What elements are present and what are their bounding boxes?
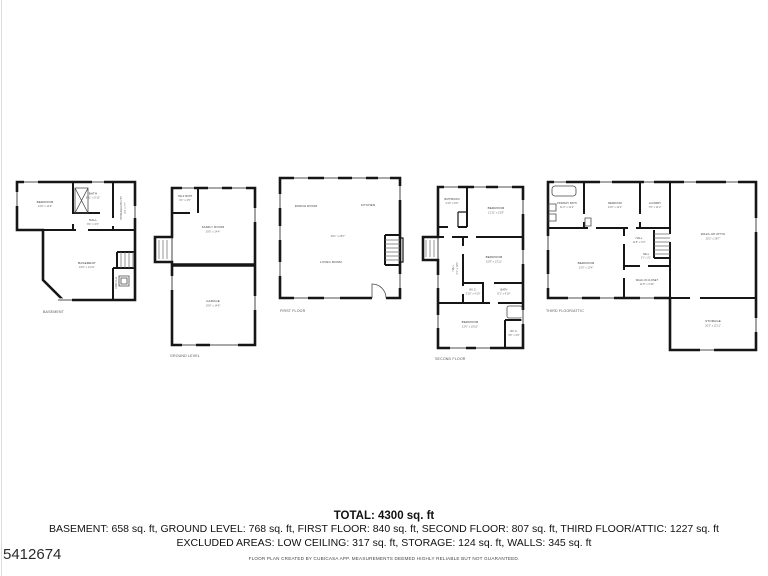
caption-third-floor-attic: THIRD FLOOR/ATTIC [546, 309, 584, 313]
room-dims-storage-utility: 3'3" x 7'7" [123, 202, 127, 214]
room-dims-basement: 19'0" x 14'11" [79, 265, 95, 269]
room-label-storage: STORAGE [705, 319, 721, 323]
plan-ground-level: HALF BATH 3'1" x 4'5" FAMILY ROOM 19'5" … [152, 176, 262, 362]
room-dims-garage: 19'6" x 14'8" [206, 304, 221, 308]
windows [438, 187, 523, 348]
toilet-icon [585, 218, 591, 226]
room-label-bedroom-2: BEDROOM [578, 261, 595, 265]
room-label-hall: HALL [452, 264, 455, 271]
room-dims-half-bath: 3'1" x 4'5" [179, 198, 191, 202]
room-label-walkin-closet: WALK-IN CLOSET [636, 279, 659, 282]
room-label-low-clg: LOW CLG [115, 277, 118, 289]
room-label-bedroom-3: BEDROOM [462, 320, 479, 324]
stairs-icon [426, 240, 434, 257]
stairs-icon [159, 240, 167, 259]
room-label-hall: HALL [89, 218, 97, 222]
room-dims-family-room: 19'5" x 14'4" [206, 230, 221, 234]
stairs-icon [385, 240, 400, 260]
closet-icon [507, 306, 522, 318]
floorplan-sheet: BEDROOM 14'6" x 11'9" BATH 8'11" x 5'10"… [0, 0, 768, 576]
room-label-primary-bath: PRIMARY BATH [557, 202, 577, 205]
room-dims-walkin-closet: 11'8" x 3'10" [640, 282, 655, 286]
room-dims-hall: 3'1" x 18'1" [455, 261, 459, 274]
walls [155, 188, 255, 345]
room-label-family-room: FAMILY ROOM [202, 225, 225, 229]
room-label-bath: BATH [501, 289, 508, 292]
plan-basement: BEDROOM 14'6" x 11'9" BATH 8'11" x 5'10"… [14, 176, 142, 326]
room-dims-bedroom-1: 12'11" x 13'9" [488, 211, 504, 215]
first-floor-dims: 29'1" x 28'7" [331, 234, 346, 238]
basement-floorplan-drawing: BEDROOM 14'6" x 11'9" BATH 8'11" x 5'10"… [14, 176, 142, 326]
room-label-kitchen: KITCHEN [361, 203, 375, 207]
room-dims-bathroom: 4'10" x 6'6" [445, 201, 458, 205]
room-label-bedroom-1: BEDROOM [488, 206, 505, 210]
room-dims-hall-1: 11'8" x 3'3" [632, 240, 645, 244]
caption-first-floor: FIRST FLOOR [280, 309, 306, 313]
room-label-bedroom: BEDROOM [37, 200, 54, 204]
room-label-bath: BATH [89, 192, 97, 196]
sink-icon [549, 204, 556, 221]
room-label-bathroom: BATHROOM [444, 198, 459, 201]
left-edge-line [1, 0, 2, 576]
plan-first-floor: DINING ROOM KITCHEN 29'1" x 28'7" LIVING… [276, 170, 408, 320]
room-dims-bedroom: 14'6" x 11'9" [38, 204, 53, 208]
room-label-wic-2: W.I.C. [510, 330, 518, 333]
room-label-hall-1: HALL [636, 237, 643, 240]
plan-third-floor-attic: PRIMARY BATH 11'3" x 11'2" BEDROOM 13'0"… [544, 178, 766, 360]
room-label-basement: BASEMENT [78, 261, 96, 265]
room-dims-bedroom-3: 13'6" x 10'10" [462, 325, 478, 329]
ground-level-floorplan-drawing: HALF BATH 3'1" x 4'5" FAMILY ROOM 19'5" … [152, 176, 262, 362]
excluded-areas-text: EXCLUDED AREAS: LOW CEILING: 317 sq. ft,… [0, 537, 768, 551]
room-dims-primary-bath: 11'3" x 11'2" [560, 205, 574, 209]
room-dims-wic-1: 3'10" x 4'10" [466, 292, 481, 296]
room-dims-wic-2: 4'5" x 4'6" [508, 333, 520, 337]
room-label-walkup-attic: WALK-UP ATTIC [701, 232, 726, 236]
room-label-dining-room: DINING ROOM [295, 204, 318, 208]
room-label-garage: GARAGE [206, 299, 220, 303]
stairs-icon [121, 252, 133, 268]
bathtub-icon [552, 186, 576, 196]
walls [280, 178, 403, 298]
room-label-laundry: LAUNDRY [649, 202, 662, 205]
room-label-hall-2: HALL [643, 253, 650, 256]
windows [280, 178, 400, 298]
room-dims-bath: 8'11" x 5'10" [86, 196, 101, 200]
room-dims-hall-2: 3'1" x 3'1" [641, 258, 651, 260]
room-dims-bedroom-1: 13'0" x 11'2" [608, 205, 623, 209]
caption-second-floor: SECOND FLOOR [435, 357, 466, 361]
room-label-living-room: LIVING ROOM [320, 260, 342, 264]
room-label-bedroom-2: BEDROOM [486, 255, 503, 259]
room-dims-laundry: 7'0" x 11'2" [648, 205, 661, 209]
plan-second-floor: BATHROOM 4'10" x 6'6" BEDROOM 12'11" x 1… [420, 180, 534, 366]
caption-basement: BASEMENT [43, 310, 65, 314]
room-label-storage-utility: STORAGE/UTILITY [120, 196, 123, 220]
area-summary: TOTAL: 4300 sq. ft BASEMENT: 658 sq. ft,… [0, 509, 768, 561]
floor-breakdown-text: BASEMENT: 658 sq. ft, GROUND LEVEL: 768 … [0, 523, 768, 537]
room-dims-hall: 8'1" x 3'3" [87, 222, 99, 226]
total-area-text: TOTAL: 4300 sq. ft [0, 509, 768, 523]
first-floor-floorplan-drawing: DINING ROOM KITCHEN 29'1" x 28'7" LIVING… [276, 170, 408, 320]
water-heater-icon [119, 276, 129, 286]
third-floor-floorplan-drawing: PRIMARY BATH 11'3" x 11'2" BEDROOM 13'0"… [544, 178, 766, 360]
room-label-wic-1: W.I.C. [469, 289, 477, 292]
disclaimer-text: FLOOR PLAN CREATED BY CUBICASA APP. MEAS… [0, 556, 768, 561]
room-dims-storage: 20'2" x 11'11" [705, 324, 721, 328]
photo-id-watermark: 5412674 [3, 546, 61, 563]
room-label-half-bath: HALF BATH [178, 195, 193, 198]
room-dims-walkup-attic: 20'2" x 28'7" [706, 237, 721, 241]
door-arc-icon [372, 284, 386, 298]
room-label-bedroom-1: BEDROOM [608, 202, 622, 205]
closet-x-icon [75, 188, 88, 213]
room-dims-bath: 8'1" x 4'10" [497, 292, 510, 296]
second-floor-floorplan-drawing: BATHROOM 4'10" x 6'6" BEDROOM 12'11" x 1… [420, 180, 534, 366]
caption-ground-level: GROUND LEVEL [170, 354, 200, 358]
room-dims-bedroom-2: 13'5" x 13'4" [579, 266, 594, 270]
room-dims-bedroom-2: 10'8" x 13'11" [486, 260, 502, 264]
stairs-icon [654, 234, 670, 254]
